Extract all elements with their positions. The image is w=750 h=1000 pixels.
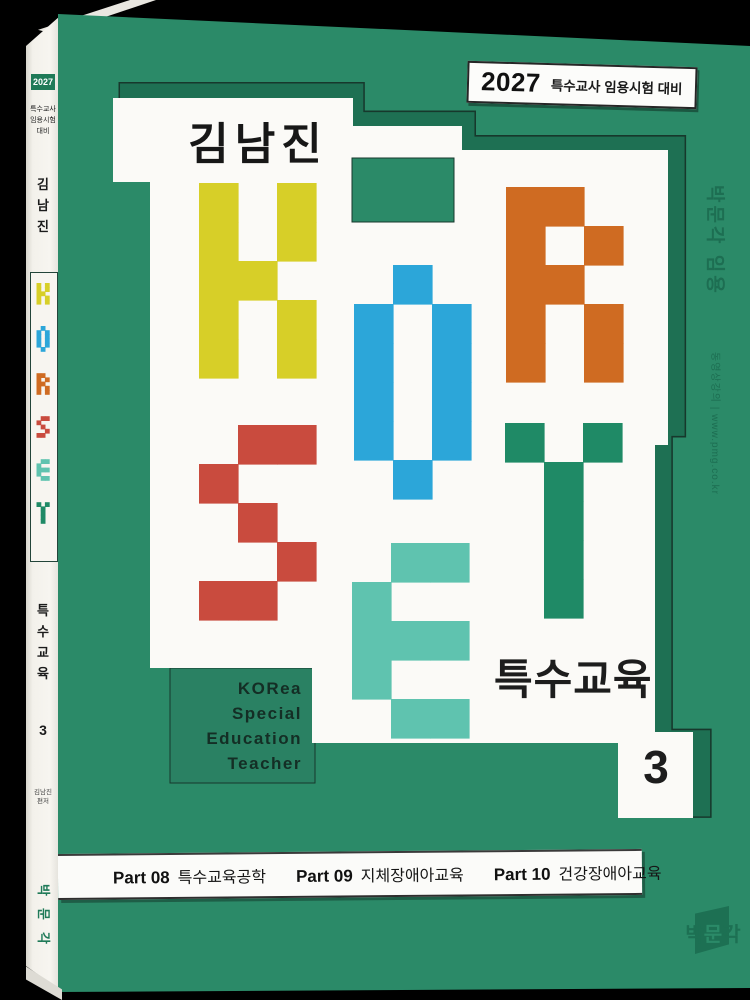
part-label: Part 10 — [494, 865, 551, 885]
part-label: Part 09 — [296, 866, 353, 886]
korset-letter-R — [37, 373, 50, 395]
cover-author-name: 김남진 — [153, 108, 363, 172]
spine-author-credit: 김남진 편저 — [26, 788, 60, 806]
korset-letter-K — [37, 283, 50, 305]
badge-text: 특수교사 임용시험 대비 — [551, 74, 683, 98]
part-label: Part 08 — [113, 868, 170, 888]
green-notch — [352, 158, 454, 222]
korset-letter-S — [37, 416, 50, 438]
publisher-imprint-vertical-text: 박문각 임용 — [703, 185, 730, 296]
part-item: Part 10 건강장애아교육 — [494, 860, 662, 885]
exam-year-badge: 2027 특수교사 임용시험 대비 — [466, 61, 697, 109]
spine-subject: 특 수 교 육 — [26, 600, 60, 684]
cover-subject-title: 특수교육 — [494, 646, 714, 707]
spine-author: 김 남 진 — [26, 174, 60, 237]
book-product-shot: 2027 특수교사 임용시험 대비 김 남 진 특 수 교 육 3 — [0, 0, 750, 1000]
spine-korset-logo-box — [30, 272, 58, 562]
badge-year: 2027 — [481, 66, 542, 99]
spine-exam-text: 특수교사 임용시험 대비 — [26, 104, 60, 137]
book-spine: 2027 특수교사 임용시험 대비 김 남 진 특 수 교 육 3 — [26, 16, 60, 990]
parts-list-band: Part 08 특수교육공학 Part 09 지체장애아교육 Part 10 건… — [58, 849, 642, 900]
korset-acronym-tagline: KORea Special Education Teacher — [206, 676, 302, 776]
part-item: Part 08 특수교육공학 — [113, 863, 266, 888]
korset-letter-E — [37, 459, 50, 481]
spine-korset-pixel-letters — [31, 273, 55, 559]
part-title: 지체장애아교육 — [361, 861, 464, 886]
part-item: Part 09 지체장애아교육 — [296, 861, 464, 886]
book-front-cover: 2027 특수교사 임용시험 대비 김남진 특수교육 3 KORea Speci… — [58, 0, 750, 1000]
lecture-url-vertical-text: 동영상강의 | www.pmg.co.kr — [709, 352, 724, 495]
cover-volume-number: 3 — [618, 740, 694, 794]
publisher-logo: 박 문 각 — [665, 906, 750, 956]
spine-volume-number: 3 — [26, 722, 60, 738]
spine-publisher: 박 문 각 — [26, 878, 60, 950]
spine-year-badge: 2027 — [31, 74, 55, 90]
part-title: 건강장애아교육 — [558, 860, 661, 885]
part-title: 특수교육공학 — [178, 863, 267, 888]
korset-letter-O — [37, 326, 50, 352]
korset-letter-T — [37, 502, 50, 524]
